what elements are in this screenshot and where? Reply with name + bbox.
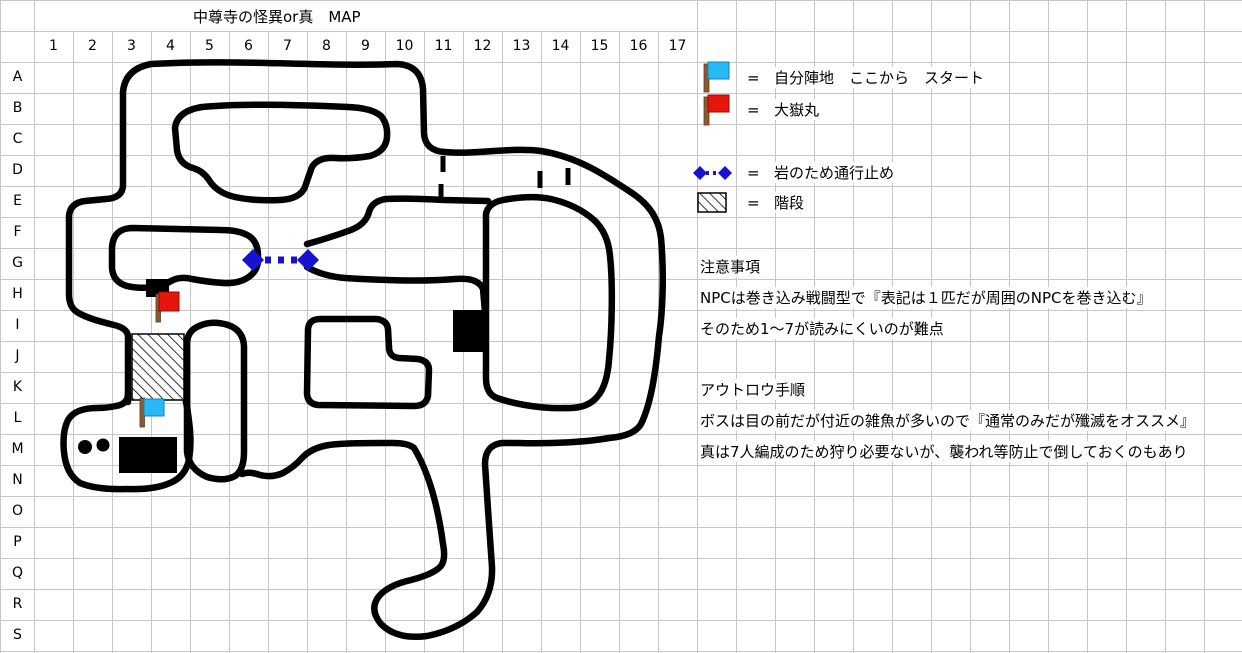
row-header-E: E — [1, 186, 34, 217]
column-header-3: 3 — [112, 31, 151, 62]
column-header-4: 4 — [151, 31, 190, 62]
row-header-B: B — [1, 93, 34, 124]
column-header-9: 9 — [346, 31, 385, 62]
equals-sign: = — [745, 69, 762, 87]
column-header-17: 17 — [658, 31, 697, 62]
legend-label-stairs: 階段 — [772, 192, 806, 213]
caution-heading: 注意事項 — [698, 256, 762, 277]
column-header-6: 6 — [229, 31, 268, 62]
column-header-14: 14 — [541, 31, 580, 62]
legend-label-start: 自分陣地 ここから スタート — [772, 67, 986, 88]
row-header-H: H — [1, 279, 34, 310]
row-header-M: M — [1, 434, 34, 465]
equals-sign: = — [745, 194, 762, 212]
row-header-S: S — [1, 620, 34, 651]
row-header-L: L — [1, 403, 34, 434]
row-header-D: D — [1, 155, 34, 186]
column-header-11: 11 — [424, 31, 463, 62]
row-header-Q: Q — [1, 558, 34, 589]
row-header-I: I — [1, 310, 34, 341]
grid-title-row-separator — [34, 0, 35, 31]
page-title: 中尊寺の怪異or真 MAP — [191, 6, 363, 27]
row-header-F: F — [1, 217, 34, 248]
row-header-O: O — [1, 496, 34, 527]
column-header-8: 8 — [307, 31, 346, 62]
caution-line-2: そのため1～7が読みにくいのが難点 — [698, 318, 946, 339]
row-header-G: G — [1, 248, 34, 279]
row-header-J: J — [1, 341, 34, 372]
legend-label-boss: 大嶽丸 — [772, 99, 821, 120]
equals-sign: = — [745, 164, 762, 182]
grid-vertical-lines-map — [34, 31, 698, 653]
outlaw-line-2: 真は7人編成のため狩り必要ないが、襲われ等防止で倒しておくのもあり — [698, 441, 1190, 462]
row-header-A: A — [1, 62, 34, 93]
column-header-7: 7 — [268, 31, 307, 62]
column-header-5: 5 — [190, 31, 229, 62]
column-header-1: 1 — [34, 31, 73, 62]
map-sheet: 中尊寺の怪異or真 MAP 1234567891011121314151617 … — [0, 0, 1242, 653]
column-header-16: 16 — [619, 31, 658, 62]
row-header-R: R — [1, 589, 34, 620]
row-header-N: N — [1, 465, 34, 496]
outlaw-heading: アウトロウ手順 — [698, 379, 807, 400]
caution-line-1: NPCは巻き込み戦闘型で『表記は１匹だが周囲のNPCを巻き込む』 — [698, 287, 1153, 308]
column-header-12: 12 — [463, 31, 502, 62]
column-header-15: 15 — [580, 31, 619, 62]
column-header-2: 2 — [73, 31, 112, 62]
legend-label-rock-barrier: 岩のため通行止め — [772, 162, 896, 183]
equals-sign: = — [745, 101, 762, 119]
row-headers: ABCDEFGHIJKLMNOPQRS — [1, 62, 34, 651]
row-header-K: K — [1, 372, 34, 403]
outlaw-line-1: ボスは目の前だが付近の雑魚が多いので『通常のみだが殲滅をオススメ』 — [698, 410, 1197, 431]
row-header-C: C — [1, 124, 34, 155]
column-header-10: 10 — [385, 31, 424, 62]
row-header-P: P — [1, 527, 34, 558]
column-headers: 1234567891011121314151617 — [34, 31, 697, 62]
column-header-13: 13 — [502, 31, 541, 62]
